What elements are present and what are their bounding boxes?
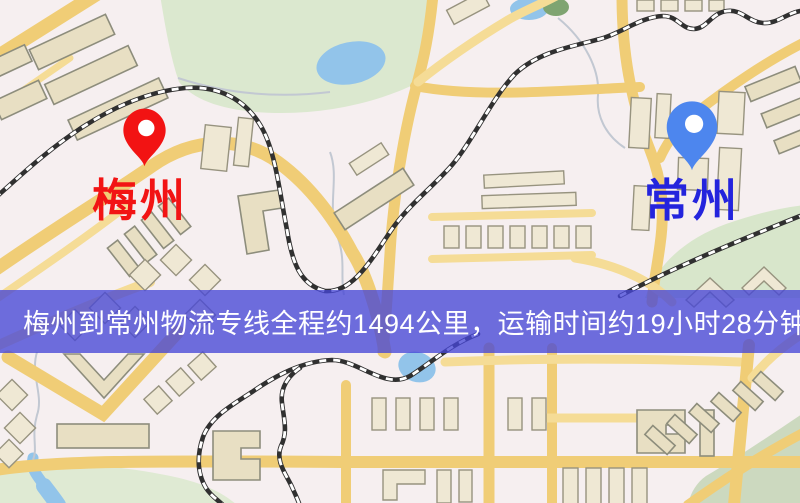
destination-city-label: 常州 xyxy=(644,178,740,223)
pin-hole xyxy=(685,115,703,133)
origin-pin-shape xyxy=(123,109,165,167)
logistics-route-map: 梅州 常州 梅州到常州物流专线全程约1494公里，运输时间约19小时28分钟. xyxy=(0,0,800,503)
pin-hole xyxy=(138,120,154,136)
destination-pin-shape xyxy=(667,101,718,170)
location-pin-icon xyxy=(662,100,722,173)
route-info-text: 梅州到常州物流专线全程约1494公里，运输时间约19小时28分钟. xyxy=(23,302,800,341)
origin-marker xyxy=(121,106,168,175)
origin-city-label: 梅州 xyxy=(92,178,188,223)
route-info-banner: 梅州到常州物流专线全程约1494公里，运输时间约19小时28分钟. xyxy=(0,290,800,353)
map-canvas xyxy=(0,0,800,503)
destination-marker xyxy=(662,100,722,178)
location-pin-icon xyxy=(121,106,168,170)
